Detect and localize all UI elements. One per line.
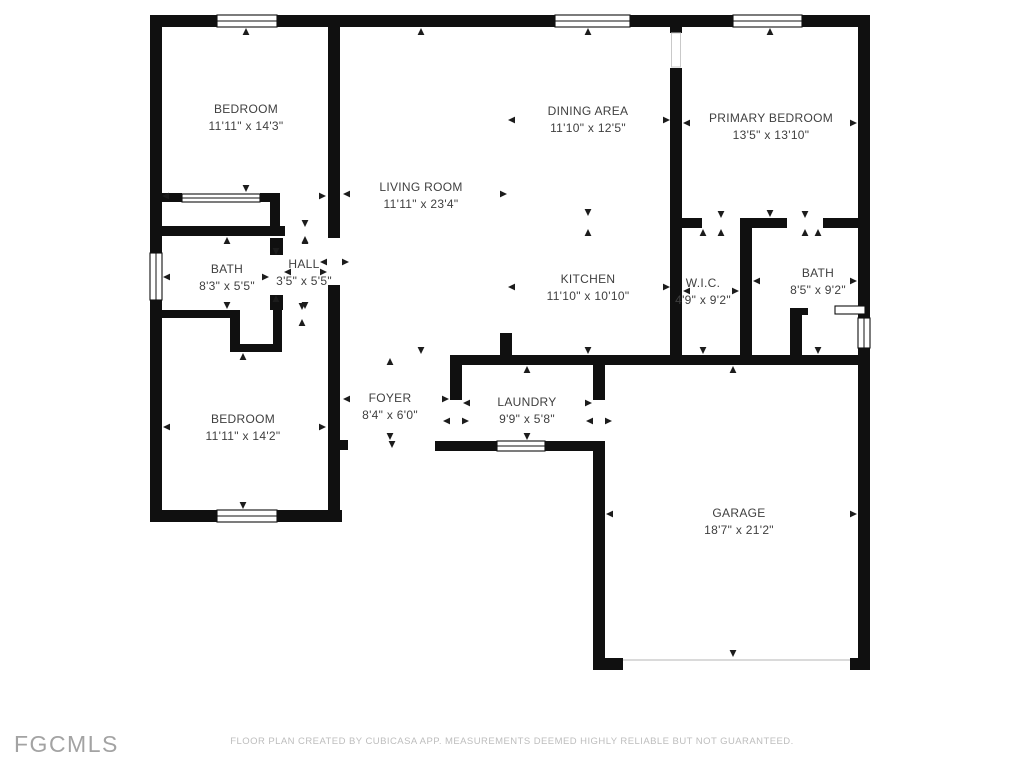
dimension-arrow-icon: [240, 353, 247, 360]
room-label-bath-left: BATH 8'3" x 5'5": [199, 261, 255, 294]
dimension-arrow-icon: [224, 237, 231, 244]
dimension-arrow-icon: [767, 210, 774, 217]
room-name: LIVING ROOM: [379, 179, 462, 196]
room-dims: 8'5" x 9'2": [790, 282, 846, 299]
dimension-arrow-icon: [585, 347, 592, 354]
room-name: BEDROOM: [206, 411, 281, 428]
dimension-arrow-icon: [585, 400, 592, 407]
dimension-arrow-icon: [243, 185, 250, 192]
room-dims: 8'4" x 6'0": [362, 407, 418, 424]
door-opening-icon: [672, 33, 681, 67]
dimension-arrow-icon: [585, 209, 592, 216]
dimension-arrow-icon: [850, 120, 857, 127]
dimension-arrow-icon: [508, 117, 515, 124]
dimension-arrow-icon: [767, 28, 774, 35]
disclaimer-text: FLOOR PLAN CREATED BY CUBICASA APP. MEAS…: [0, 736, 1024, 747]
room-dims: 11'10" x 12'5": [548, 120, 629, 137]
dimension-arrow-icon: [524, 433, 531, 440]
room-name: KITCHEN: [547, 271, 630, 288]
dimension-arrow-icon: [605, 418, 612, 425]
dimension-arrow-icon: [850, 511, 857, 518]
room-dims: 11'10" x 10'10": [547, 288, 630, 305]
room-name: BATH: [199, 261, 255, 278]
floor-plan-drawing: [0, 0, 1024, 768]
dimension-arrow-icon: [732, 288, 739, 295]
room-name: BEDROOM: [209, 101, 284, 118]
dimension-arrow-icon: [585, 28, 592, 35]
dimension-arrow-icon: [753, 278, 760, 285]
dimension-arrow-icon: [302, 236, 309, 243]
dimension-arrow-icon: [663, 284, 670, 291]
dimension-arrow-icon: [418, 28, 425, 35]
room-dims: 13'5" x 13'10": [709, 127, 833, 144]
dimension-arrow-icon: [802, 211, 809, 218]
dimension-arrow-icon: [718, 229, 725, 236]
dimension-arrow-icon: [815, 229, 822, 236]
dimension-arrow-icon: [163, 274, 170, 281]
dimension-arrow-icon: [802, 229, 809, 236]
room-dims: 4'9" x 9'2": [675, 292, 731, 309]
dimension-arrow-icon: [243, 28, 250, 35]
dimension-arrow-icon: [343, 396, 350, 403]
room-name: FOYER: [362, 390, 418, 407]
room-label-foyer: FOYER 8'4" x 6'0": [362, 390, 418, 423]
dimension-arrow-icon: [319, 193, 326, 200]
window-layer: [150, 15, 870, 522]
dimension-arrow-icon: [163, 424, 170, 431]
room-name: HALL: [276, 256, 332, 273]
dimension-arrow-icon: [508, 284, 515, 291]
room-label-wic: W.I.C. 4'9" x 9'2": [675, 275, 731, 308]
room-label-bedroom-bottom-left: BEDROOM 11'11" x 14'2": [206, 411, 281, 444]
vanity-icon: [835, 306, 865, 314]
room-dims: 11'11" x 14'2": [206, 428, 281, 445]
dimension-arrow-icon: [700, 347, 707, 354]
dimension-arrow-icon: [850, 278, 857, 285]
dimension-arrow-icon: [418, 347, 425, 354]
room-label-kitchen: KITCHEN 11'10" x 10'10": [547, 271, 630, 304]
room-dims: 8'3" x 5'5": [199, 278, 255, 295]
dimension-arrow-icon: [718, 211, 725, 218]
floor-plan-page: BEDROOM 11'11" x 14'3" DINING AREA 11'10…: [0, 0, 1024, 768]
dimension-arrow-icon: [343, 191, 350, 198]
dimension-arrow-icon: [524, 366, 531, 373]
room-name: GARAGE: [704, 505, 774, 522]
room-label-bath-right: BATH 8'5" x 9'2": [790, 265, 846, 298]
room-dims: 3'5" x 5'5": [276, 273, 332, 290]
dimension-arrow-icon: [500, 191, 507, 198]
room-name: PRIMARY BEDROOM: [709, 110, 833, 127]
room-label-dining-area: DINING AREA 11'10" x 12'5": [548, 103, 629, 136]
dimension-arrow-icon: [606, 511, 613, 518]
dimension-arrow-icon: [815, 347, 822, 354]
room-label-laundry: LAUNDRY 9'9" x 5'8": [497, 394, 556, 427]
room-label-living-room: LIVING ROOM 11'11" x 23'4": [379, 179, 462, 212]
dimension-arrow-icon: [700, 229, 707, 236]
room-label-bedroom-top-left: BEDROOM 11'11" x 14'3": [209, 101, 284, 134]
dimension-arrow-icon: [302, 220, 309, 227]
dimension-arrow-icon: [683, 120, 690, 127]
room-dims: 9'9" x 5'8": [497, 411, 556, 428]
dimension-arrow-icon: [262, 274, 269, 281]
dimension-arrow-icon: [342, 259, 349, 266]
room-dims: 11'11" x 23'4": [379, 196, 462, 213]
dimension-arrow-icon: [443, 418, 450, 425]
dimension-arrow-icon: [730, 366, 737, 373]
dimension-arrow-icon: [462, 418, 469, 425]
dimension-arrow-icon: [389, 441, 396, 448]
room-name: LAUNDRY: [497, 394, 556, 411]
dimension-arrow-icon: [319, 424, 326, 431]
dimension-arrow-icon: [463, 400, 470, 407]
dimension-arrow-icon: [730, 650, 737, 657]
room-dims: 18'7" x 21'2": [704, 522, 774, 539]
dimension-arrow-icon: [224, 302, 231, 309]
dimension-arrow-icon: [442, 396, 449, 403]
room-label-garage: GARAGE 18'7" x 21'2": [704, 505, 774, 538]
dimension-arrow-icon: [586, 418, 593, 425]
dimension-arrow-icon: [387, 358, 394, 365]
room-name: BATH: [790, 265, 846, 282]
room-name: DINING AREA: [548, 103, 629, 120]
room-label-primary-bedroom: PRIMARY BEDROOM 13'5" x 13'10": [709, 110, 833, 143]
dimension-arrow-icon: [387, 433, 394, 440]
room-name: W.I.C.: [675, 275, 731, 292]
room-dims: 11'11" x 14'3": [209, 118, 284, 135]
dimension-arrow-icon: [663, 117, 670, 124]
room-label-hall: HALL 3'5" x 5'5": [276, 256, 332, 289]
dimension-arrow-icon: [240, 502, 247, 509]
dimension-arrow-icon: [299, 319, 306, 326]
dimension-arrow-icon: [585, 229, 592, 236]
